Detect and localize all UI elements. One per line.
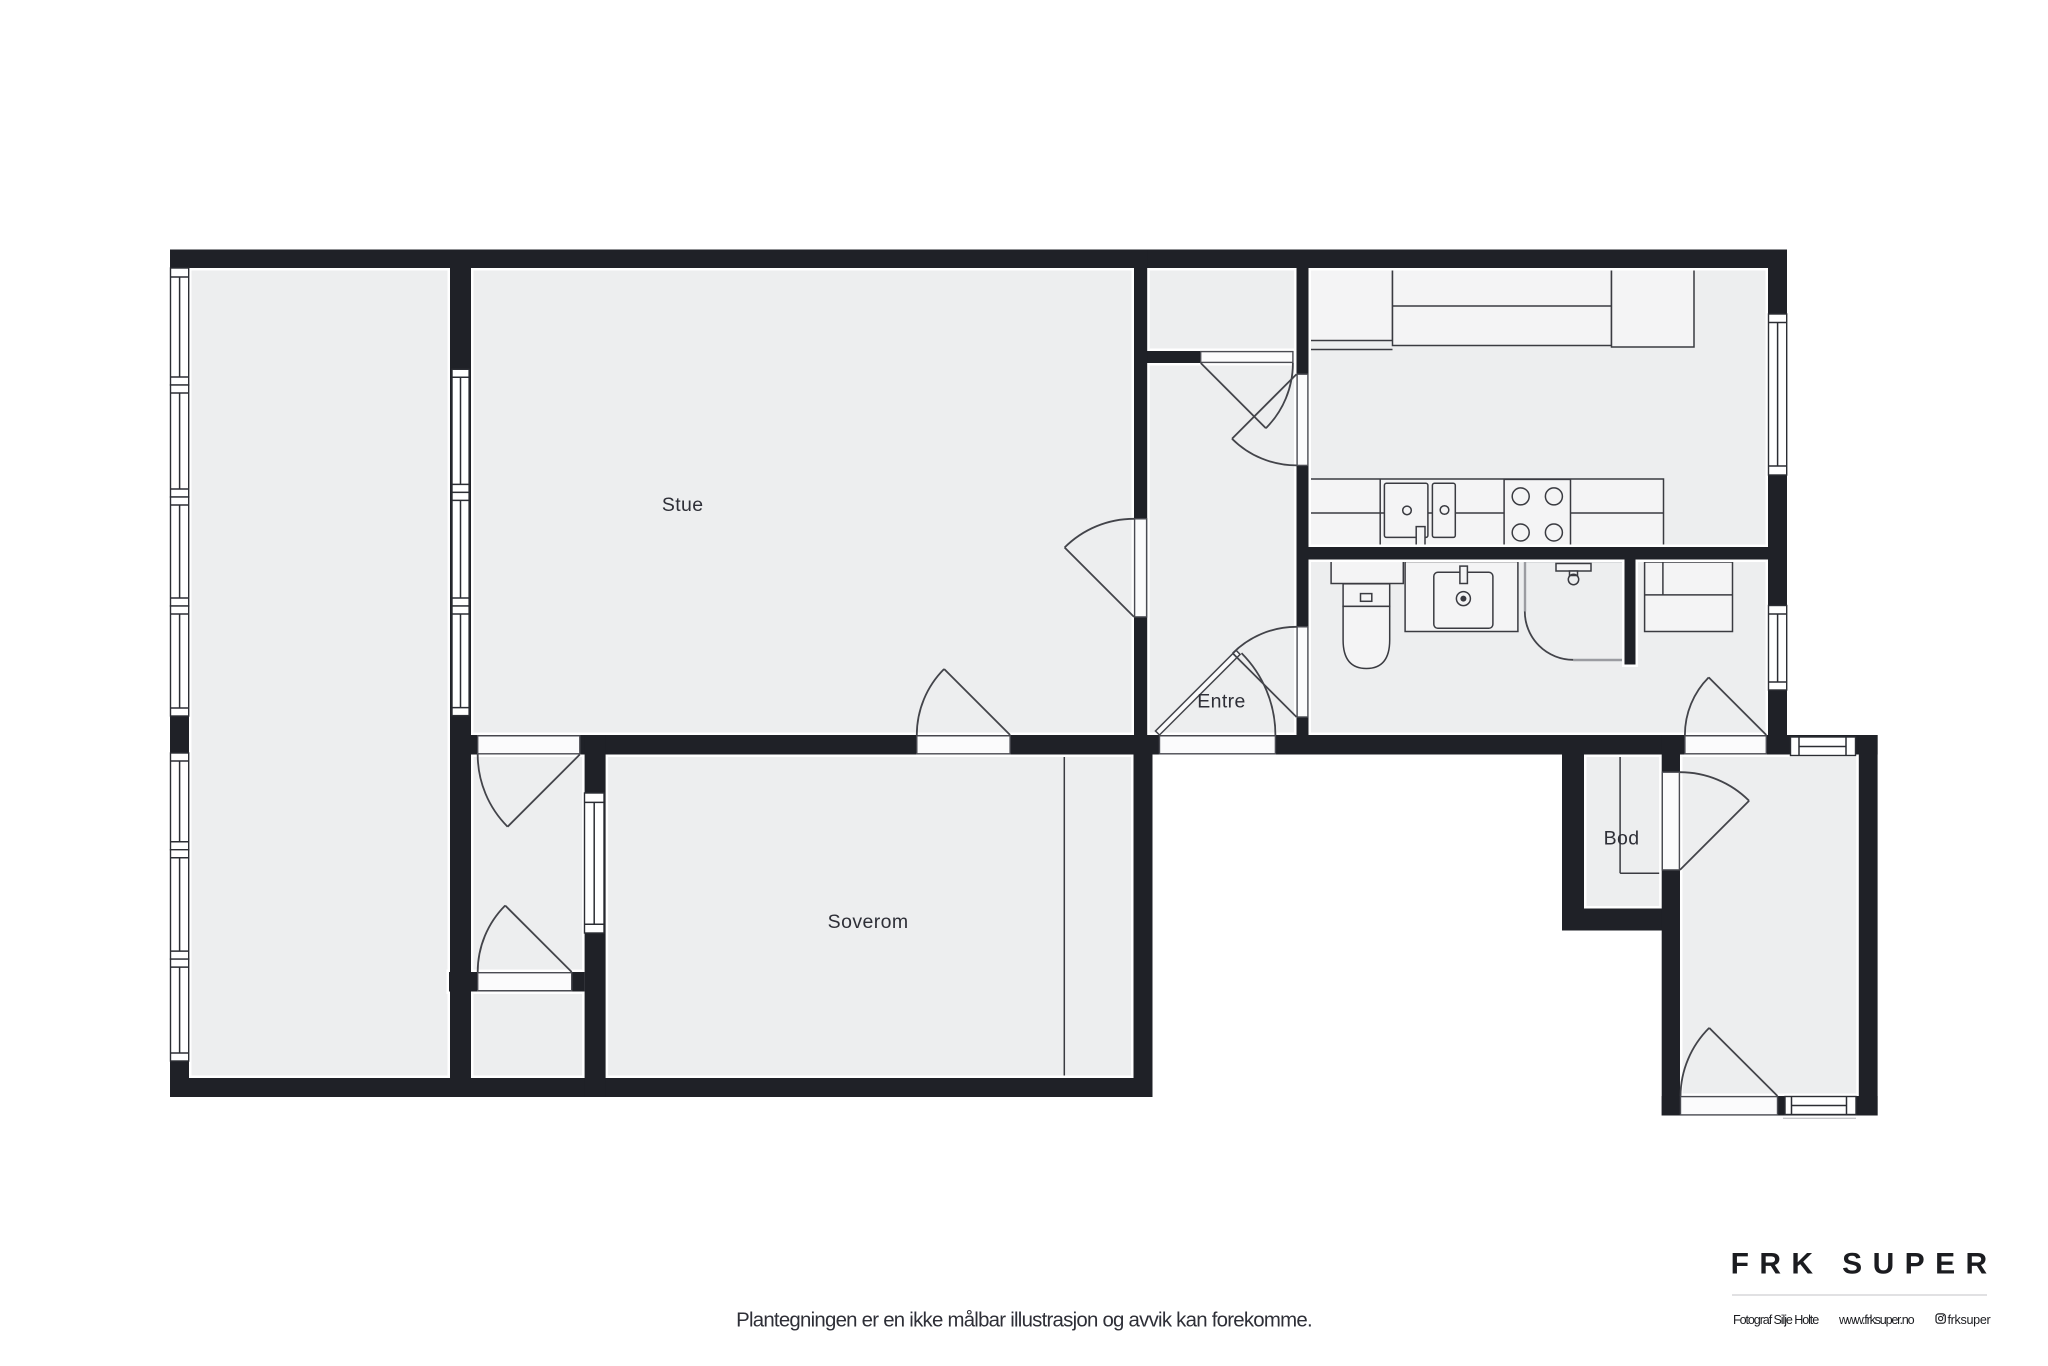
svg-text:Entre: Entre	[1197, 690, 1246, 712]
svg-text:frksuper: frksuper	[1948, 1313, 1991, 1327]
svg-text:Plantegningen er en ikke målba: Plantegningen er en ikke målbar illustra…	[736, 1310, 1312, 1332]
svg-text:www.frksuper.no: www.frksuper.no	[1838, 1313, 1915, 1327]
svg-text:Bod: Bod	[1604, 828, 1640, 850]
svg-text:Soverom: Soverom	[828, 911, 909, 933]
svg-text:Fotograf Silje Holte: Fotograf Silje Holte	[1733, 1313, 1819, 1327]
svg-text:Stue: Stue	[662, 494, 704, 516]
svg-text:FRK SUPER: FRK SUPER	[1731, 1247, 1998, 1280]
